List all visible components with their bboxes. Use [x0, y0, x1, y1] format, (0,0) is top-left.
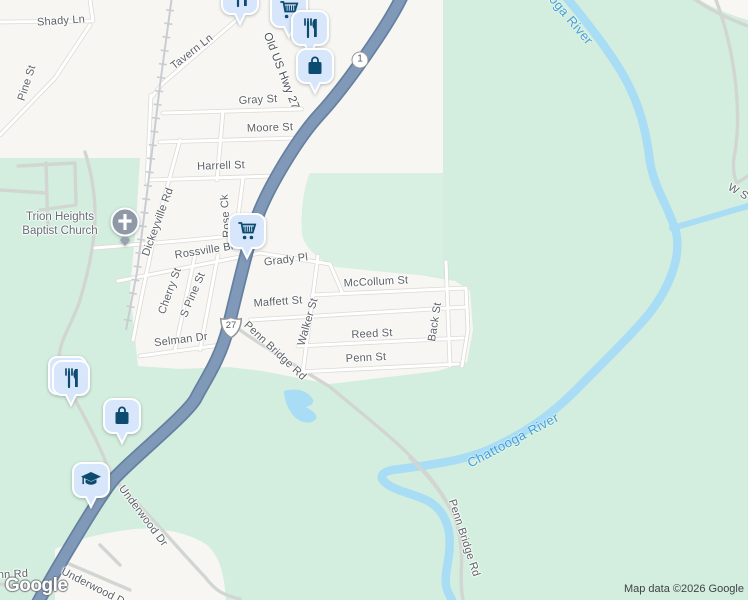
map-label-gray-st: Gray St [238, 93, 277, 107]
bag-pin[interactable] [100, 397, 144, 453]
school-pin[interactable] [69, 461, 113, 517]
bag-pin[interactable] [293, 47, 337, 103]
restaurant-pin[interactable] [49, 359, 93, 415]
church-label-line1: Trion Heights [22, 210, 97, 224]
route-27-shield: 27 [218, 315, 244, 341]
map-label-moore-st: Moore St [247, 121, 294, 135]
route-1-shield: 1 [352, 52, 369, 69]
cart-pin[interactable] [225, 212, 269, 268]
map-attribution: Map data ©2026 Google [624, 583, 744, 595]
restaurant-pin[interactable] [218, 0, 262, 34]
map-label-penn-st: Penn St [345, 351, 386, 365]
cross-icon [110, 207, 140, 247]
map-label-harrell-st: Harrell St [197, 159, 245, 173]
map-canvas[interactable]: Shady LnPine StTavern LnOld US Hwy 27Gra… [0, 0, 748, 600]
church-pin[interactable] [110, 207, 140, 247]
google-logo[interactable]: Google [5, 575, 67, 597]
church-label: Trion Heights Baptist Church [22, 210, 97, 238]
church-label-line2: Baptist Church [22, 224, 97, 238]
map-label-reed-st: Reed St [351, 327, 393, 341]
